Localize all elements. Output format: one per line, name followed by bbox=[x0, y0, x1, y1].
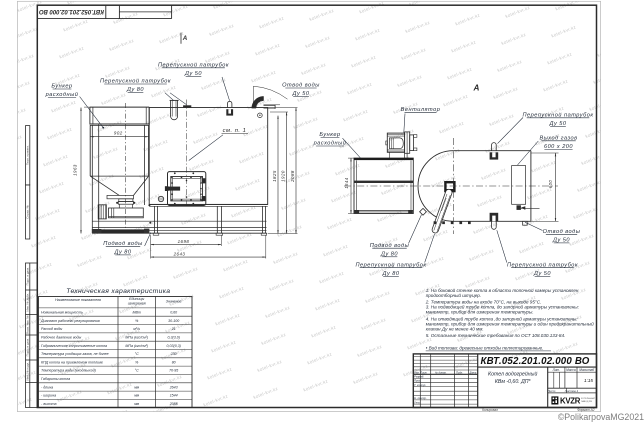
svg-text:м³/ч: м³/ч bbox=[133, 327, 140, 331]
svg-text:Копировал: Копировал bbox=[482, 408, 498, 412]
svg-text:Ду 80: Ду 80 bbox=[380, 251, 398, 257]
svg-text:Выход газов: Выход газов bbox=[539, 135, 577, 141]
svg-text:Номинальная мощность: Номинальная мощность bbox=[41, 311, 83, 315]
svg-text:Т. контр.: Т. контр. bbox=[414, 383, 426, 387]
svg-text:клапан Ду не менее 40 мм.: клапан Ду не менее 40 мм. bbox=[426, 326, 484, 331]
svg-text:Подвод воды: Подвод воды bbox=[370, 243, 409, 249]
svg-text:Подвод воды: Подвод воды bbox=[103, 241, 142, 247]
svg-text:80: 80 bbox=[172, 360, 176, 364]
svg-text:230: 230 bbox=[170, 352, 177, 356]
svg-text:°С: °С bbox=[135, 352, 139, 356]
svg-text:Ду 50: Ду 50 bbox=[552, 238, 570, 244]
svg-text:Утв.: Утв. bbox=[414, 400, 421, 404]
svg-text:1963: 1963 bbox=[73, 164, 78, 176]
svg-text:1:15: 1:15 bbox=[584, 378, 593, 383]
svg-text:- длина: - длина bbox=[41, 385, 53, 389]
svg-text:мм: мм bbox=[134, 394, 139, 398]
svg-text:1698: 1698 bbox=[178, 239, 190, 244]
svg-text:600: 600 bbox=[548, 180, 553, 189]
svg-text:Ду 80: Ду 80 bbox=[113, 250, 131, 256]
svg-text:2088: 2088 bbox=[169, 402, 178, 406]
svg-text:Инв. № дубл.: Инв. № дубл. bbox=[26, 293, 30, 312]
svg-text:• Вид топлива: древесные отх: • Вид топлива: древесные отходы пеллетир… bbox=[426, 346, 544, 351]
svg-text:©PolikarpovaMG2021: ©PolikarpovaMG2021 bbox=[558, 412, 644, 422]
svg-text:Расход воды: Расход воды bbox=[41, 327, 63, 331]
svg-text:1544: 1544 bbox=[344, 177, 349, 188]
svg-text:Техническая характеристика: Техническая характеристика bbox=[66, 288, 170, 295]
svg-text:МПа (кгс/см²): МПа (кгс/см²) bbox=[125, 344, 148, 348]
svg-text:Вентилятор: Вентилятор bbox=[401, 107, 441, 113]
svg-text:Бункер: Бункер bbox=[51, 84, 72, 90]
svg-text:Котел водогрейный: Котел водогрейный bbox=[488, 370, 537, 377]
svg-text:- ширина: - ширина bbox=[41, 394, 56, 398]
svg-text:Ду 80: Ду 80 bbox=[381, 271, 399, 277]
svg-text:КПД котла на приемлемом топлив: КПД котла на приемлемом топливе bbox=[41, 360, 103, 364]
svg-text:Наименование показателя: Наименование показателя bbox=[55, 298, 101, 302]
svg-text:мм: мм bbox=[134, 385, 139, 389]
svg-text:Температура уходящих газов, не: Температура уходящих газов, не более bbox=[41, 352, 109, 356]
svg-text:КВТ.052.201.02.000 ВО: КВТ.052.201.02.000 ВО bbox=[39, 8, 104, 14]
svg-text:1825: 1825 bbox=[272, 170, 277, 182]
svg-text:Гидравлическое сопротивление к: Гидравлическое сопротивление котла bbox=[41, 344, 107, 348]
svg-text:Ду 50: Ду 50 bbox=[184, 71, 202, 77]
svg-text:№ докум.: № докум. bbox=[435, 371, 447, 375]
svg-text:Листов 1: Листов 1 bbox=[564, 389, 579, 393]
svg-text:- высота: - высота bbox=[41, 402, 56, 406]
svg-text:1544: 1544 bbox=[170, 394, 178, 398]
svg-text:Рабочее давление воды: Рабочее давление воды bbox=[41, 336, 82, 340]
svg-text:ЗАВОД Р.В: ЗАВОД Р.В bbox=[581, 400, 593, 403]
svg-text:902: 902 bbox=[114, 131, 123, 136]
svg-text:Подп. и дата: Подп. и дата bbox=[26, 338, 30, 356]
svg-text:Подп.: Подп. bbox=[456, 371, 463, 375]
svg-text:Отвод воды: Отвод воды bbox=[282, 83, 320, 89]
svg-text:Диапазон рабочего регулировани: Диапазон рабочего регулирования bbox=[40, 319, 100, 323]
svg-text:Перепускной патрубок: Перепускной патрубок bbox=[158, 61, 229, 68]
svg-text:мм: мм bbox=[134, 402, 139, 406]
svg-text:21: 21 bbox=[171, 327, 176, 331]
svg-text:Температура воды (вход/выход): Температура воды (вход/выход) bbox=[41, 369, 96, 373]
svg-text:Перв. примен.: Перв. примен. bbox=[26, 145, 30, 165]
svg-text:МВт: МВт bbox=[133, 311, 141, 315]
svg-text:600 х 200: 600 х 200 bbox=[544, 144, 573, 150]
svg-text:Ду 50: Ду 50 bbox=[548, 121, 566, 127]
svg-text:2088: 2088 bbox=[290, 170, 295, 183]
svg-text:МПа (кгс/см²): МПа (кгс/см²) bbox=[125, 336, 148, 340]
svg-text:1920: 1920 bbox=[281, 170, 286, 182]
svg-text:Изм. Лист: Изм. Лист bbox=[414, 371, 428, 375]
svg-text:КВТ.052.201.02.000 ВО: КВТ.052.201.02.000 ВО bbox=[480, 356, 589, 367]
svg-text:KVZR: KVZR bbox=[560, 396, 581, 405]
svg-text:Лит.: Лит. bbox=[552, 368, 561, 372]
svg-text:Единицы: Единицы bbox=[129, 297, 144, 301]
svg-text:Дата: Дата bbox=[469, 371, 477, 375]
svg-text:КОТЕЛЬНЫЙ: КОТЕЛЬНЫЙ bbox=[581, 397, 595, 400]
svg-text:2643: 2643 bbox=[173, 251, 186, 256]
svg-text:0,60: 0,60 bbox=[170, 311, 177, 315]
svg-text:Ду 50: Ду 50 bbox=[291, 91, 309, 97]
svg-text:Значение: Значение bbox=[166, 300, 182, 304]
svg-text:Ду 80: Ду 80 bbox=[126, 87, 144, 93]
svg-text:А: А bbox=[473, 83, 480, 92]
svg-text:Перепускной патрубок: Перепускной патрубок bbox=[522, 111, 593, 118]
svg-text:расходный: расходный bbox=[313, 140, 347, 147]
svg-text:0,03(0,3): 0,03(0,3) bbox=[167, 344, 181, 348]
svg-text:Отвод воды: Отвод воды bbox=[543, 229, 581, 235]
svg-text:°С: °С bbox=[135, 369, 139, 373]
svg-text:манометр, прибор для измерения: манометр, прибор для измерения температу… bbox=[426, 309, 534, 314]
svg-text:70-95: 70-95 bbox=[169, 369, 178, 373]
svg-text:0,3(3,0): 0,3(3,0) bbox=[168, 336, 180, 340]
svg-text:измерения: измерения bbox=[128, 302, 146, 306]
svg-text:А: А bbox=[182, 35, 188, 42]
svg-text:Взам. инв. №: Взам. инв. № bbox=[26, 315, 30, 334]
svg-text:см. п. 1: см. п. 1 bbox=[223, 128, 247, 134]
svg-text:КВм -0,60. ДП*: КВм -0,60. ДП* bbox=[495, 379, 532, 385]
svg-text:5. Остальные технические треб: 5. Остальные технические требования по О… bbox=[426, 333, 566, 338]
svg-text:расходный: расходный bbox=[45, 91, 79, 98]
svg-text:30-100: 30-100 bbox=[168, 319, 179, 323]
svg-text:продоотборный штуцер.: продоотборный штуцер. bbox=[426, 292, 481, 298]
svg-text:Габариты котла: Габариты котла bbox=[41, 377, 70, 381]
svg-text:Перепускной патрубок: Перепускной патрубок bbox=[355, 261, 426, 268]
svg-text:Справ. №: Справ. № bbox=[26, 204, 30, 218]
svg-text:Инв. № подл.: Инв. № подл. bbox=[26, 362, 30, 381]
svg-text:Перепускной патрубок: Перепускной патрубок bbox=[507, 261, 578, 268]
svg-text:2643: 2643 bbox=[169, 385, 178, 389]
svg-text:Подп. и дата: Подп. и дата bbox=[26, 267, 30, 285]
svg-text:Перепускной патрубок: Перепускной патрубок bbox=[100, 78, 171, 85]
svg-text:Масса: Масса bbox=[566, 368, 576, 372]
svg-text:Бункер: Бункер bbox=[319, 132, 340, 138]
svg-text:Ду 50: Ду 50 bbox=[533, 271, 551, 277]
svg-text:Масштаб: Масштаб bbox=[579, 368, 594, 372]
svg-text:Лист: Лист bbox=[547, 389, 556, 393]
